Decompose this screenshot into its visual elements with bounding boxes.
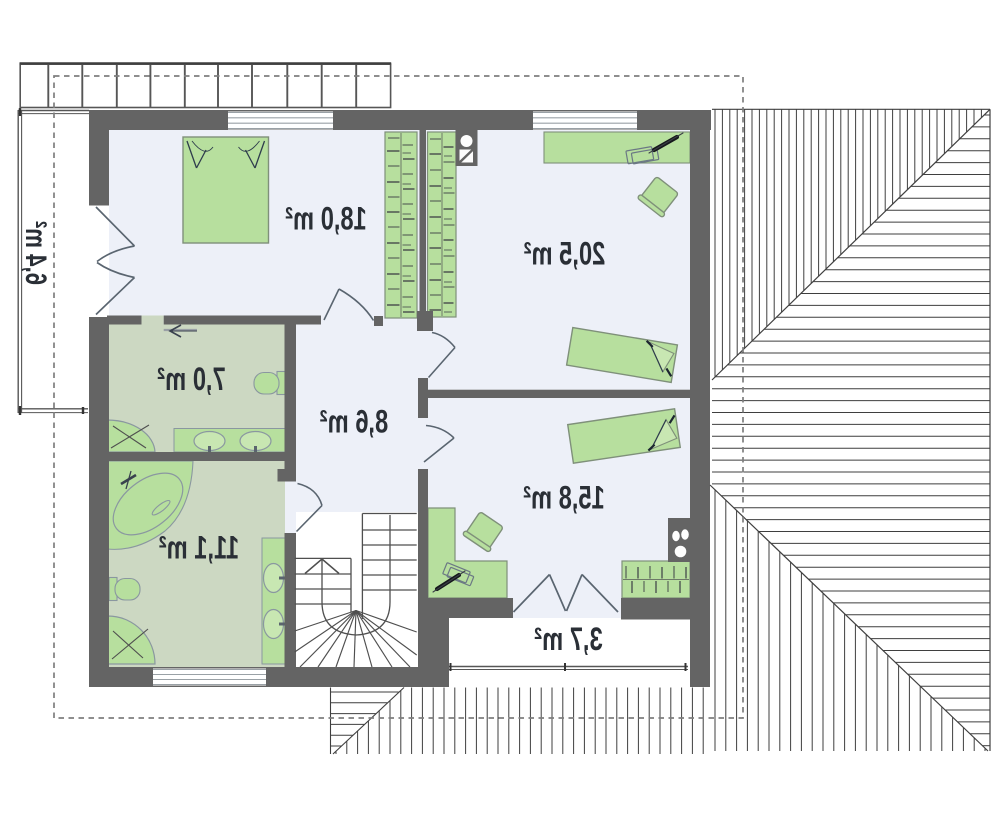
svg-text:3,7 m²: 3,7 m² <box>534 622 602 657</box>
svg-text:20,5 m²: 20,5 m² <box>524 236 606 271</box>
svg-text:11,1 m²: 11,1 m² <box>159 530 239 565</box>
svg-text:6,4 m²: 6,4 m² <box>19 221 53 285</box>
svg-text:7,0 m²: 7,0 m² <box>157 362 225 397</box>
svg-text:8,6 m²: 8,6 m² <box>320 404 388 439</box>
svg-text:18,0 m²: 18,0 m² <box>285 201 367 236</box>
svg-text:15,8 m²: 15,8 m² <box>523 480 605 515</box>
